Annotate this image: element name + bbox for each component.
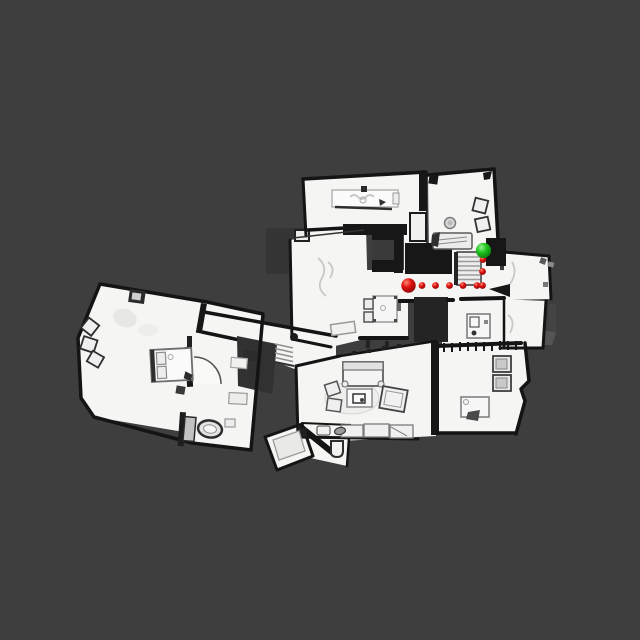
pillow bbox=[157, 366, 167, 378]
chair bbox=[364, 299, 373, 309]
c-shaped-wall bbox=[372, 228, 403, 273]
room-bottom-right-floor bbox=[437, 343, 529, 434]
closet-box bbox=[410, 213, 426, 241]
chair bbox=[475, 217, 490, 232]
sideboard bbox=[364, 424, 389, 437]
armchair bbox=[379, 386, 407, 412]
start-marker bbox=[401, 278, 415, 292]
furniture-top-office bbox=[332, 186, 399, 209]
chair bbox=[364, 312, 373, 322]
path-dot bbox=[446, 282, 453, 289]
dark-void-kitchen bbox=[414, 297, 448, 342]
furniture-small-office bbox=[467, 314, 490, 338]
path-dot bbox=[419, 282, 426, 289]
bed bbox=[150, 348, 193, 383]
chair bbox=[326, 398, 342, 412]
path-dot bbox=[432, 282, 439, 289]
sideboard bbox=[390, 425, 413, 438]
goal-marker bbox=[476, 243, 491, 258]
path-dot bbox=[479, 268, 486, 275]
path-dot bbox=[479, 282, 486, 289]
pillow bbox=[156, 352, 166, 364]
desk-item bbox=[361, 186, 367, 192]
path-dot bbox=[460, 282, 467, 289]
floorplan-svg bbox=[0, 0, 640, 640]
chair bbox=[472, 198, 488, 214]
sink bbox=[225, 419, 235, 427]
toilet-tank bbox=[183, 417, 196, 442]
toilet bbox=[331, 441, 343, 457]
furniture-dining bbox=[364, 296, 401, 322]
map-viewport bbox=[0, 0, 640, 640]
staircase-main bbox=[454, 252, 481, 285]
right-block-lower-floor bbox=[500, 299, 546, 348]
coffee-table bbox=[347, 389, 372, 407]
bench bbox=[330, 321, 355, 335]
